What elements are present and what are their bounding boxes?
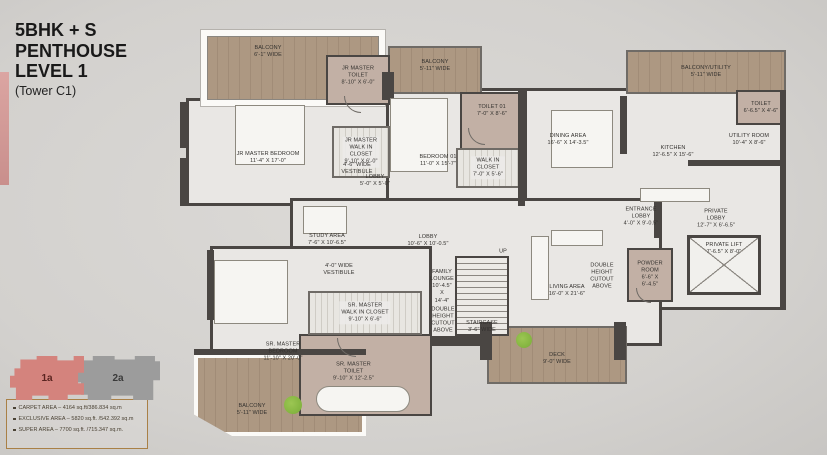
up-label: UP — [499, 248, 507, 255]
exclusive-area-text: EXCLUSIVE AREA – 5820 sq.ft. /542.392 sq… — [19, 416, 134, 422]
double-height-cutout-right-label: DOUBLE HEIGHT CUTOUT ABOVE — [590, 263, 613, 292]
plant-icon — [516, 332, 532, 348]
sr-master-bedroom-label: SR. MASTER BEDROOM 11'-10" X 20'-0" — [264, 341, 303, 362]
double-height-cutout-left-label: DOUBLE HEIGHT CUTOUT ABOVE — [431, 307, 454, 336]
kitchen-label: KITCHEN 12'-6.5" X 15'-6" — [652, 145, 693, 159]
toilet-top-right-label: TOILET 6'-6.5" X 4'-6" — [744, 100, 779, 114]
area-row: EXCLUSIVE AREA – 5820 sq.ft. /542.392 sq… — [13, 416, 143, 422]
living-area-label: LIVING AREA 16'-0" X 21'-6" — [549, 284, 585, 298]
sr-master-closet-label: SR. MASTER WALK IN CLOSET 9'-10" X 6'-6" — [339, 301, 390, 324]
toilet-01-label: TOILET 01 7'-0" X 8'-6" — [477, 104, 507, 118]
entrance-lobby-label: ENTRANCE LOBBY 4'-0" X 9'-0.5" — [624, 206, 659, 227]
key-plan-unit-2a: 2a — [76, 356, 160, 400]
balcony-top-middle-label: BALCONY 5'-11" WIDE — [420, 59, 451, 73]
jr-master-bedroom-label: JR MASTER BEDROOM 11'-4" X 17'-0" — [237, 151, 300, 165]
key-plan-unit-1a-label: 1a — [41, 373, 52, 384]
deck-label: DECK 9'-0" WIDE — [543, 352, 571, 366]
bullet-icon — [13, 418, 16, 421]
private-lobby-label: PRIVATE LOBBY 12'-7" X 6'-6.5" — [697, 208, 735, 229]
private-lift-label: PRIVATE LIFT 7'-6.5" X 8'-0" — [706, 242, 743, 256]
wall-segment — [430, 336, 488, 344]
utility-room-label: UTILITY ROOM 10'-4" X 8'-6" — [729, 133, 769, 147]
wall-segment — [780, 92, 786, 310]
walkin-closet-01-label: WALK IN CLOSET 7'-0" X 5'-6" — [471, 156, 505, 179]
vestibule-sr-label: 4'-0" WIDE VESTIBULE — [323, 263, 354, 277]
sr-master-toilet-label: SR. MASTER TOILET 9'-10" X 12'-2.5" — [333, 361, 374, 382]
powder-room-label: POWDER ROOM 6'-6" X 6'-4.5" — [637, 261, 662, 290]
key-plan-unit-2a-label: 2a — [112, 373, 123, 384]
area-row: SUPER AREA – 7700 sq.ft. /715.347 sq.m. — [13, 427, 143, 433]
dining-area-label: DINING AREA 16'-6" X 14'-3.5" — [547, 133, 588, 147]
jr-master-toilet-label: JR MASTER TOILET 8'-10" X 6'-0" — [341, 65, 374, 86]
wall-segment — [518, 88, 525, 206]
balcony-bottom-left-label: BALCONY 5'-11" WIDE — [237, 403, 268, 417]
family-lounge-label: FAMILY LOUNGE 10'-4.5" X 14'-4" — [430, 269, 454, 305]
lobby-main-label: LOBBY 10'-6" X 10'-0.5" — [407, 234, 448, 248]
wall-segment — [620, 96, 627, 154]
floorplan-canvas: 5BHK + S PENTHOUSE LEVEL 1 (Tower C1) BA… — [0, 0, 827, 455]
area-row: CARPET AREA – 4164 sq.ft/386.834 sq.m — [13, 405, 143, 411]
plant-icon — [284, 396, 302, 414]
study-table-icon — [303, 206, 347, 234]
study-area-label: STUDY AREA 7'-6" X 10'-6.5" — [308, 233, 346, 247]
bullet-icon — [13, 429, 16, 432]
bullet-icon — [13, 407, 16, 410]
toilet-01-area — [460, 92, 524, 150]
super-area-text: SUPER AREA – 7700 sq.ft. /715.347 sq.m. — [19, 427, 124, 433]
area-summary-box: CARPET AREA – 4164 sq.ft/386.834 sq.m EX… — [6, 399, 148, 449]
bed-icon — [214, 260, 288, 324]
wall-segment — [180, 102, 188, 148]
bathtub-icon — [316, 386, 410, 412]
balcony-utility-top-right-label: BALCONY/UTILITY 5'-11" WIDE — [681, 65, 731, 79]
wall-segment — [180, 158, 188, 206]
balcony-top-left-label: BALCONY 6'-1" WIDE — [254, 45, 282, 59]
bedroom-01-label: BEDROOM 01 11'-0" X 15'-7" — [419, 154, 456, 168]
wall-segment — [688, 160, 786, 166]
wall-segment — [382, 72, 394, 100]
key-plan-unit-1a: 1a — [10, 356, 84, 400]
kitchen-counter-icon — [640, 188, 710, 202]
carpet-area-text: CARPET AREA – 4164 sq.ft/386.834 sq.m — [19, 405, 122, 411]
wall-segment — [207, 250, 214, 320]
sofa-icon — [531, 236, 549, 300]
lobby-small-label: LOBBY 5'-0" X 5'-0" — [360, 174, 390, 188]
wall-segment — [614, 322, 626, 360]
staircase-label: STAIRCASE 3'-6" WIDE — [466, 320, 498, 334]
sofa-icon — [551, 230, 603, 246]
